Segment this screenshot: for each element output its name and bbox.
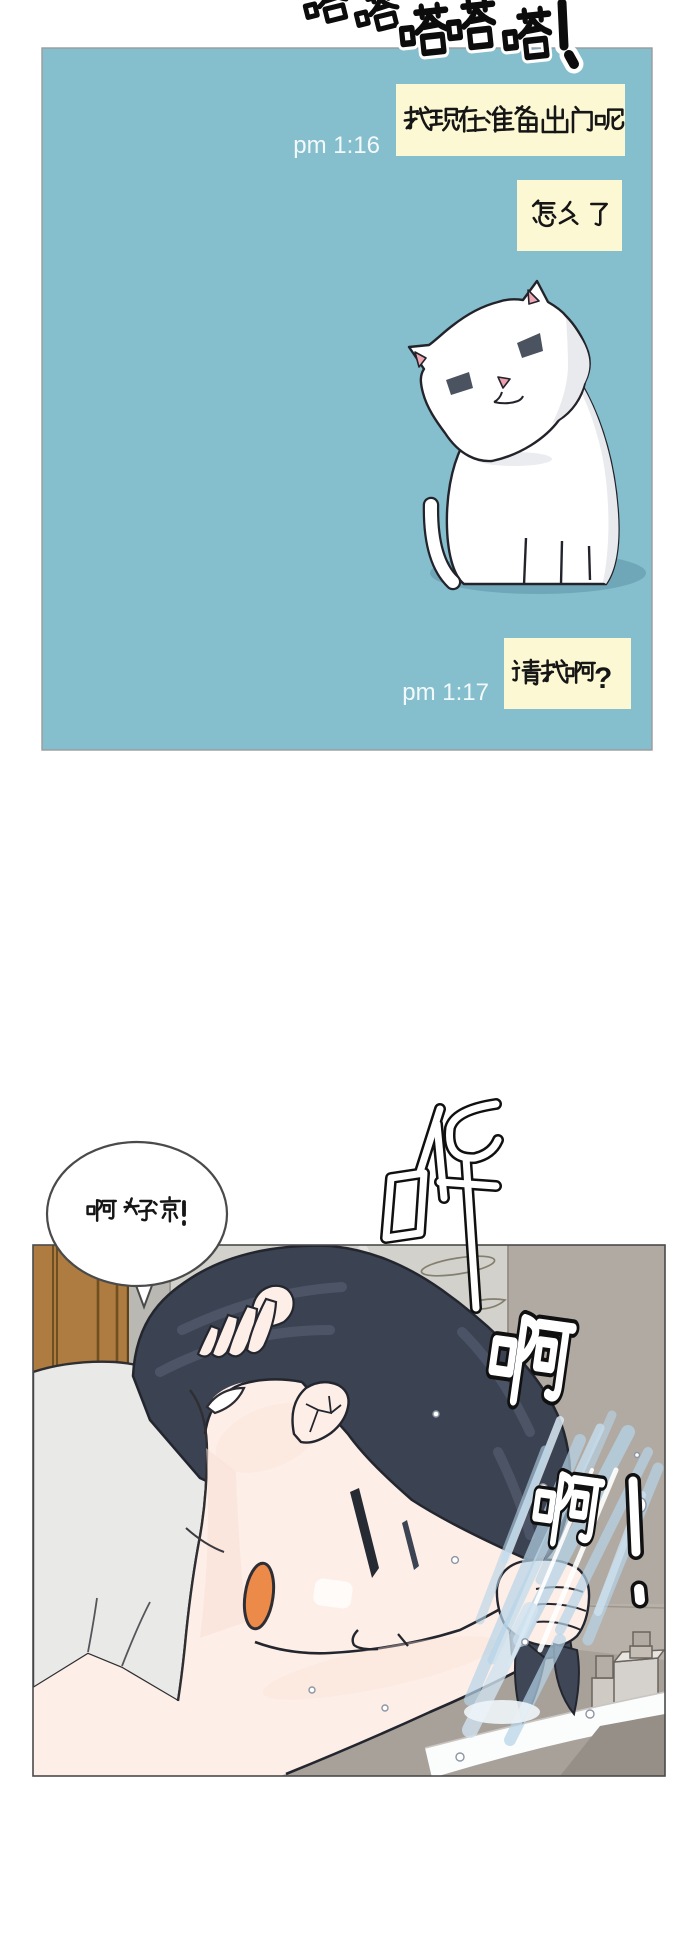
svg-text:pm 1:17: pm 1:17 [402, 679, 489, 706]
svg-text:?: ? [594, 662, 612, 695]
svg-text:pm 1:16: pm 1:16 [293, 132, 380, 159]
